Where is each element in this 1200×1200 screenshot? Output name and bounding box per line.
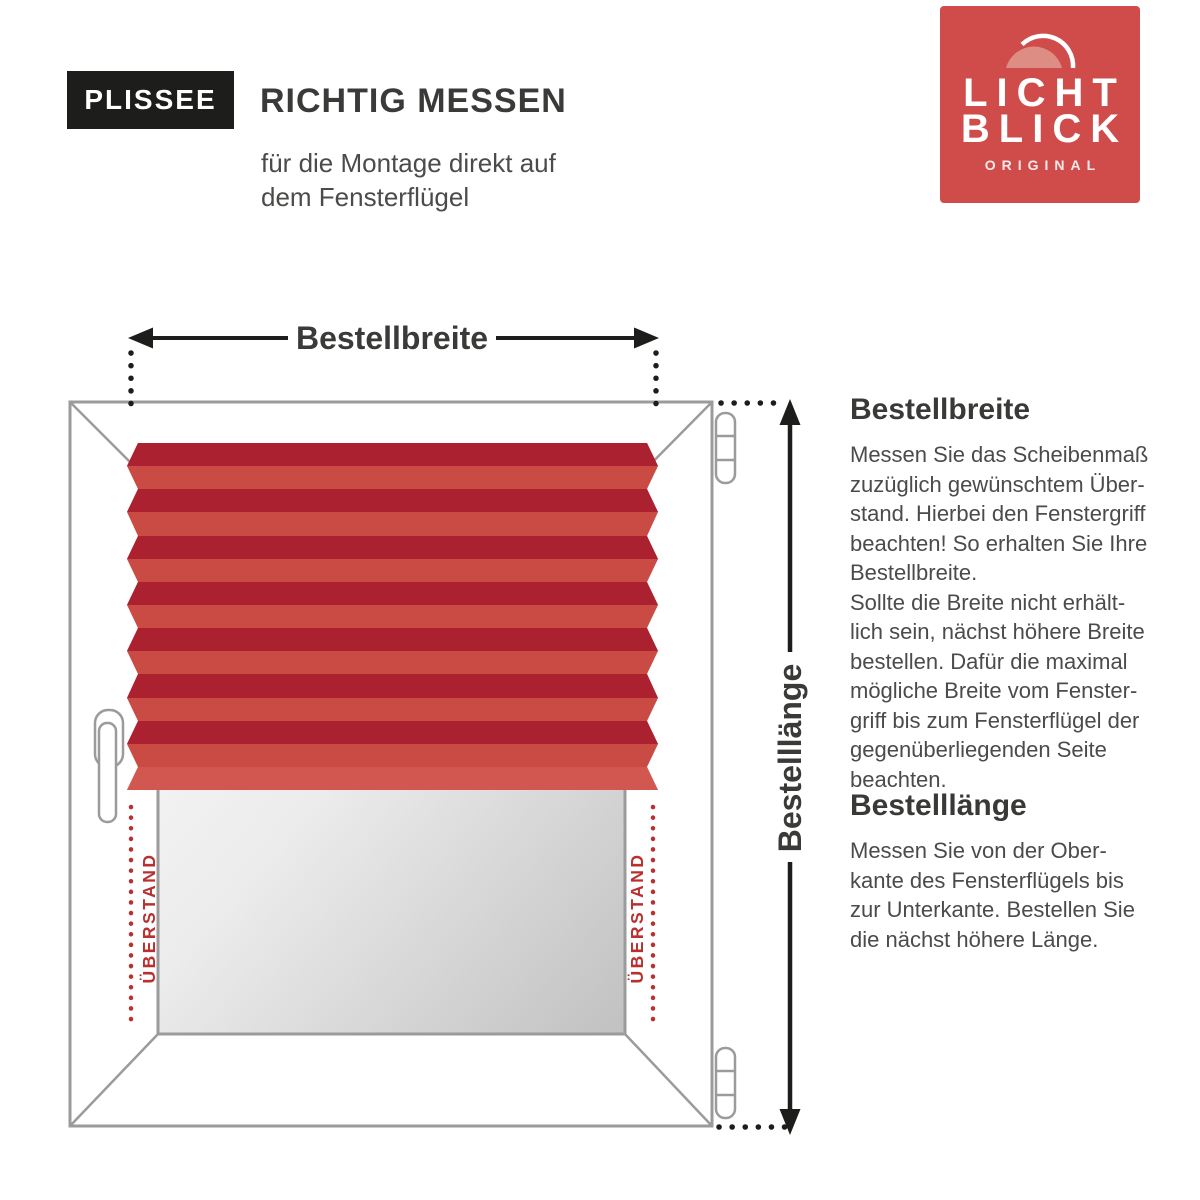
instructions-width-body: Messen Sie das Scheibenmaß zuzüglich gew… [850, 440, 1195, 794]
blind-pleat-dark [127, 721, 658, 744]
arrowhead-left [128, 328, 153, 349]
window-hinge-bottom [716, 1048, 735, 1118]
overhang-label-left: ÜBERSTAND [139, 852, 159, 983]
instructions-width-heading: Bestellbreite [850, 393, 1195, 427]
instructions-length-heading: Bestelllänge [850, 789, 1195, 823]
arrowhead-right [634, 328, 659, 349]
width-measure-arrow: Bestellbreite [128, 320, 659, 414]
overhang-label-right: ÜBERSTAND [627, 852, 647, 983]
page: PLISSEE RICHTIG MESSEN für die Montage d… [0, 0, 1200, 1200]
instructions-width-section: Bestellbreite Messen Sie das Scheibenmaß… [850, 393, 1195, 794]
length-measure-arrow: Bestelllänge [719, 399, 808, 1135]
window-hinge-top [716, 413, 735, 483]
blind-pleat-dark [127, 674, 658, 698]
pleated-blind [127, 443, 658, 790]
blind-pleat-dark [127, 628, 658, 651]
blind-pleat-dark [127, 443, 658, 466]
arrowhead-down [780, 1109, 801, 1135]
instructions-length-section: Bestelllänge Messen Sie von der Ober- ka… [850, 789, 1195, 954]
blind-pleat-dark [127, 582, 658, 605]
arrowhead-up [780, 399, 801, 425]
blind-pleat-dark [127, 536, 658, 559]
blind-pleat-dark [127, 489, 658, 512]
width-measure-label: Bestellbreite [296, 320, 488, 356]
length-measure-label: Bestelllänge [772, 664, 808, 853]
blind-pleat-bottom [127, 767, 658, 790]
instructions-length-body: Messen Sie von der Ober- kante des Fenst… [850, 836, 1195, 954]
window-handle-lever [99, 723, 116, 822]
